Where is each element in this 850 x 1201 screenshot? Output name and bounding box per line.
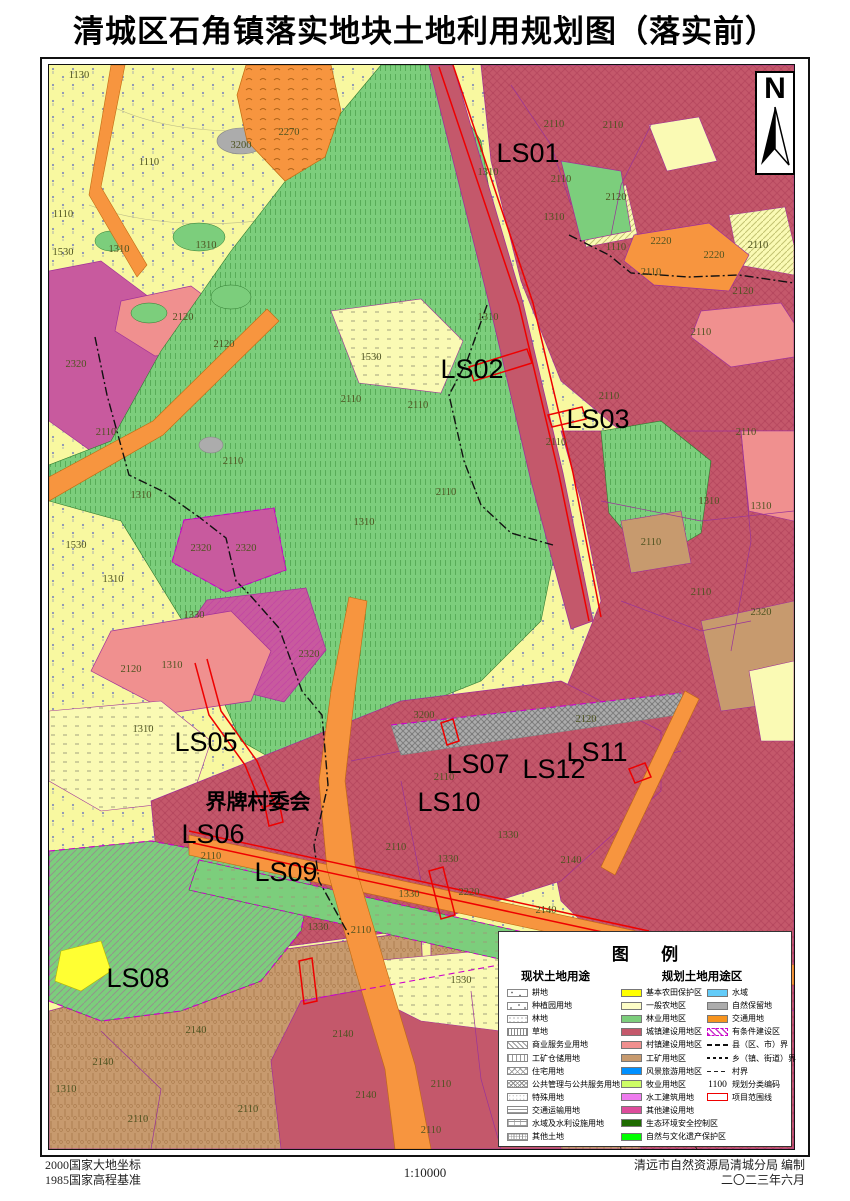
zone-code-label: 2110 — [421, 1125, 442, 1136]
legend-color-swatch — [621, 1093, 642, 1101]
zone-code-label: 1110 — [53, 209, 73, 220]
zone-code-label: 2140 — [333, 1029, 354, 1040]
zone-code-label: 1110 — [606, 242, 626, 253]
zone-code-label: 2110 — [436, 487, 457, 498]
zone-code-label: 2110 — [691, 327, 712, 338]
legend-item-label: 耕地 — [532, 987, 548, 998]
legend-item: 自然保留地 — [707, 999, 793, 1012]
legend-color-swatch — [621, 1002, 642, 1010]
legend-title: 图 例 — [499, 940, 791, 965]
zone-code-label: 2220 — [704, 250, 725, 261]
zone-code-label: 2140 — [93, 1057, 114, 1068]
zone-code-label: 1310 — [354, 517, 375, 528]
zone-code-label: 1530 — [451, 975, 472, 986]
zone-code-label: 1310 — [699, 496, 720, 507]
legend-item-label: 特殊用地 — [532, 1092, 564, 1103]
legend-color-swatch — [621, 1080, 642, 1088]
legend-item-label: 林地 — [532, 1013, 548, 1024]
page: 清城区石角镇落实地块土地利用规划图（落实前） — [0, 0, 850, 1201]
legend-color-swatch — [621, 1133, 642, 1141]
legend-current-header: 现状土地用途 — [521, 968, 590, 984]
zone-code-label: 2110 — [603, 120, 624, 131]
legend-color-swatch — [621, 1106, 642, 1114]
legend-item-label: 城镇建设用地区 — [646, 1026, 702, 1037]
zone-code-label: 2120 — [733, 286, 754, 297]
legend-item: 特殊用地 — [507, 1091, 623, 1104]
legend-symbol-line3 — [707, 1071, 728, 1072]
zone-code-label: 2120 — [606, 192, 627, 203]
legend-symbol-code: 1100 — [707, 1080, 728, 1088]
zone-code-label: 2120 — [173, 312, 194, 323]
legend-item: 1100规划分类编码 — [707, 1078, 793, 1091]
zone-code-label: 2110 — [201, 851, 222, 862]
zone-code-label: 1310 — [109, 244, 130, 255]
legend-box: 图 例 现状土地用途 规划土地用途区 耕地种植园用地林地草地商业服务业用地工矿仓… — [498, 931, 792, 1147]
legend-pattern-swatch — [507, 1002, 528, 1010]
parcel-label-ls07: LS07 — [446, 749, 509, 779]
zone-code-label: 1330 — [184, 610, 205, 621]
page-title: 清城区石角镇落实地块土地利用规划图（落实前） — [0, 6, 850, 51]
legend-item: 公共管理与公共服务用地 — [507, 1078, 623, 1091]
legend-symbols-column: 水域自然保留地交通用地有条件建设区县（区、市）界乡（镇、街道）界村界1100规划… — [707, 986, 793, 1104]
legend-item-label: 水工建筑用地 — [646, 1092, 694, 1103]
zone-code-label: 1310 — [162, 660, 183, 671]
footer-credit-line2: 二〇二三年六月 — [634, 1173, 805, 1188]
zone-code-label: 1530 — [53, 247, 74, 258]
legend-item-label: 一般农地区 — [646, 1000, 686, 1011]
legend-item-label: 其他建设用地 — [646, 1105, 694, 1116]
zone-code-label: 2270 — [279, 127, 300, 138]
legend-item-label: 自然与文化遗产保护区 — [646, 1131, 726, 1142]
parcel-label-ls10: LS10 — [417, 787, 480, 817]
legend-item-label: 生态环境安全控制区 — [646, 1118, 718, 1129]
legend-item: 乡（镇、街道）界 — [707, 1051, 793, 1064]
footer-credit-line1: 清远市自然资源局清城分局 编制 — [634, 1158, 805, 1173]
legend-item: 水域 — [707, 986, 793, 999]
legend-item-label: 自然保留地 — [732, 1000, 772, 1011]
north-arrow: N — [755, 71, 795, 175]
zone-code-label: 2110 — [551, 174, 572, 185]
legend-pattern-swatch — [507, 1067, 528, 1075]
zone-code-label: 2110 — [599, 391, 620, 402]
zone-code-label: 2110 — [736, 427, 757, 438]
parcel-label-ls05: LS05 — [174, 727, 237, 757]
legend-item-label: 水域 — [732, 987, 748, 998]
legend-planned-header: 规划土地用途区 — [627, 968, 777, 984]
legend-item: 生态环境安全控制区 — [621, 1117, 791, 1130]
zone-code-label: 1530 — [66, 540, 87, 551]
legend-item-label: 其他土地 — [532, 1131, 564, 1142]
legend-pattern-swatch — [507, 1106, 528, 1114]
parcel-label-ls02: LS02 — [440, 354, 503, 384]
legend-item: 交通用地 — [707, 1012, 793, 1025]
legend-item-label: 有条件建设区 — [732, 1026, 780, 1037]
legend-pattern-swatch — [507, 1080, 528, 1088]
parcel-label-ls03: LS03 — [566, 404, 629, 434]
legend-pattern-swatch — [507, 1028, 528, 1036]
legend-item: 其他土地 — [507, 1130, 623, 1143]
north-label: N — [757, 73, 793, 105]
zone-code-label: 2110 — [546, 437, 567, 448]
legend-item: 商业服务业用地 — [507, 1038, 623, 1051]
legend-color-swatch — [621, 1054, 642, 1062]
legend-item-label: 交通用地 — [732, 1013, 764, 1024]
legend-color-swatch — [621, 1028, 642, 1036]
legend-item-label: 交通运输用地 — [532, 1105, 580, 1116]
zone-code-label: 3200 — [414, 710, 435, 721]
zone-code-label: 2320 — [299, 649, 320, 660]
legend-pattern-swatch — [507, 989, 528, 997]
zone-code-label: 2140 — [356, 1090, 377, 1101]
zone-code-label: 2110 — [386, 842, 407, 853]
place-label: 界牌村委会 — [206, 790, 311, 814]
zone-code-label: 2320 — [236, 543, 257, 554]
zone-code-label: 2320 — [751, 607, 772, 618]
zone-code-label: 2140 — [186, 1025, 207, 1036]
map-container[interactable]: 1130111011102270320013101310153021202120… — [48, 64, 795, 1150]
legend-item: 村界 — [707, 1065, 793, 1078]
legend-color-swatch — [621, 1119, 642, 1127]
zone-code-label: 2120 — [214, 339, 235, 350]
legend-item: 种植园用地 — [507, 999, 623, 1012]
zone-code-label: 2140 — [561, 855, 582, 866]
legend-pattern-swatch — [507, 1015, 528, 1023]
zone-code-label: 2110 — [748, 240, 769, 251]
zone-code-label: 2120 — [576, 714, 597, 725]
zone-code-label: 2110 — [96, 427, 117, 438]
legend-item-label: 风景旅游用地区 — [646, 1066, 702, 1077]
legend-item-label: 工矿用地区 — [646, 1053, 686, 1064]
zone-code-label: 1310 — [103, 574, 124, 585]
legend-item: 项目范围线 — [707, 1091, 793, 1104]
legend-item: 住宅用地 — [507, 1065, 623, 1078]
zone-code-label: 1110 — [139, 157, 159, 168]
legend-item-label: 草地 — [532, 1026, 548, 1037]
legend-item-label: 住宅用地 — [532, 1066, 564, 1077]
zone-code-label: 2110 — [238, 1104, 259, 1115]
legend-item: 自然与文化遗产保护区 — [621, 1130, 791, 1143]
zone-code-label: 1310 — [56, 1084, 77, 1095]
legend-item-label: 基本农田保护区 — [646, 987, 702, 998]
north-arrow-icon — [757, 105, 793, 169]
zone-code-label: 2110 — [408, 400, 429, 411]
legend-symbol-swatch — [707, 1015, 728, 1023]
zone-code-label: 1310 — [478, 312, 499, 323]
legend-item: 耕地 — [507, 986, 623, 999]
legend-item-label: 种植园用地 — [532, 1000, 572, 1011]
legend-symbol-redbox — [707, 1093, 728, 1101]
zone-code-label: 1330 — [308, 922, 329, 933]
legend-item-label: 商业服务业用地 — [532, 1039, 588, 1050]
zone-code-label: 1310 — [196, 240, 217, 251]
legend-item: 工矿仓储用地 — [507, 1051, 623, 1064]
legend-symbol-line1 — [707, 1044, 728, 1047]
parcel-label-ls01: LS01 — [496, 138, 559, 168]
parcel-label-ls09: LS09 — [254, 857, 317, 887]
legend-item: 有条件建设区 — [707, 1025, 793, 1038]
legend-color-swatch — [621, 1015, 642, 1023]
zone-code-label: 1310 — [133, 724, 154, 735]
zone-code-label: 2110 — [544, 119, 565, 130]
legend-color-swatch — [621, 1041, 642, 1049]
legend-pattern-swatch — [507, 1041, 528, 1049]
legend-item-label: 项目范围线 — [732, 1092, 772, 1103]
legend-item-label: 规划分类编码 — [732, 1079, 780, 1090]
legend-item-label: 村镇建设用地区 — [646, 1039, 702, 1050]
zone-code-label: 1530 — [361, 352, 382, 363]
legend-item-label: 公共管理与公共服务用地 — [532, 1079, 620, 1090]
zone-code-label: 2120 — [121, 664, 142, 675]
zone-code-label: 2110 — [341, 394, 362, 405]
zone-code-label: 2110 — [128, 1114, 149, 1125]
zone-code-label: 2110 — [641, 267, 662, 278]
zone-code-label: 2320 — [66, 359, 87, 370]
zone-code-label: 1310 — [751, 501, 772, 512]
zone-code-label: 1330 — [438, 854, 459, 865]
zone-code-label: 2110 — [223, 456, 244, 467]
parcel-label-ls06: LS06 — [181, 819, 244, 849]
zone-code-label: 2110 — [641, 537, 662, 548]
legend-item-label: 水域及水利设施用地 — [532, 1118, 604, 1129]
legend-pattern-swatch — [507, 1119, 528, 1127]
legend-color-swatch — [621, 1067, 642, 1075]
zone-code-label: 1330 — [399, 889, 420, 900]
legend-pattern-swatch — [507, 1133, 528, 1141]
legend-pattern-swatch — [507, 1093, 528, 1101]
legend-item-label: 乡（镇、街道）界 — [732, 1053, 796, 1064]
legend-item: 林地 — [507, 1012, 623, 1025]
zone-code-label: 2140 — [536, 905, 557, 916]
footer-credit: 清远市自然资源局清城分局 编制 二〇二三年六月 — [634, 1158, 805, 1188]
legend-item: 县（区、市）界 — [707, 1038, 793, 1051]
legend-item: 草地 — [507, 1025, 623, 1038]
zone-code-label: 1330 — [498, 830, 519, 841]
parcel-label-ls08: LS08 — [106, 963, 169, 993]
legend-item: 其他建设用地 — [621, 1104, 791, 1117]
legend-symbol-cond — [707, 1028, 728, 1036]
legend-color-swatch — [621, 989, 642, 997]
legend-item-label: 林业用地区 — [646, 1013, 686, 1024]
zone-code-label: 3200 — [231, 140, 252, 151]
zone-code-label: 2220 — [651, 236, 672, 247]
zone-code-label: 2220 — [459, 887, 480, 898]
legend-symbol-line2 — [707, 1057, 728, 1060]
legend-item: 水域及水利设施用地 — [507, 1117, 623, 1130]
zone-code-label: 1310 — [131, 490, 152, 501]
legend-symbol-swatch — [707, 989, 728, 997]
zone-code-label: 1130 — [69, 70, 90, 81]
zone-code-label: 1310 — [544, 212, 565, 223]
parcel-label-ls12: LS12 — [522, 754, 585, 784]
legend-pattern-swatch — [507, 1054, 528, 1062]
zone-code-label: 1310 — [478, 167, 499, 178]
zone-code-label: 2110 — [431, 1079, 452, 1090]
zone-code-label: 2320 — [191, 543, 212, 554]
legend-current-column: 耕地种植园用地林地草地商业服务业用地工矿仓储用地住宅用地公共管理与公共服务用地特… — [507, 986, 623, 1143]
zone-code-label: 2110 — [351, 925, 372, 936]
legend-symbol-swatch — [707, 1002, 728, 1010]
legend-item-label: 县（区、市）界 — [732, 1039, 788, 1050]
legend-item: 交通运输用地 — [507, 1104, 623, 1117]
zone-code-label: 2110 — [691, 587, 712, 598]
legend-item-label: 村界 — [732, 1066, 748, 1077]
legend-item-label: 牧业用地区 — [646, 1079, 686, 1090]
legend-item-label: 工矿仓储用地 — [532, 1053, 580, 1064]
